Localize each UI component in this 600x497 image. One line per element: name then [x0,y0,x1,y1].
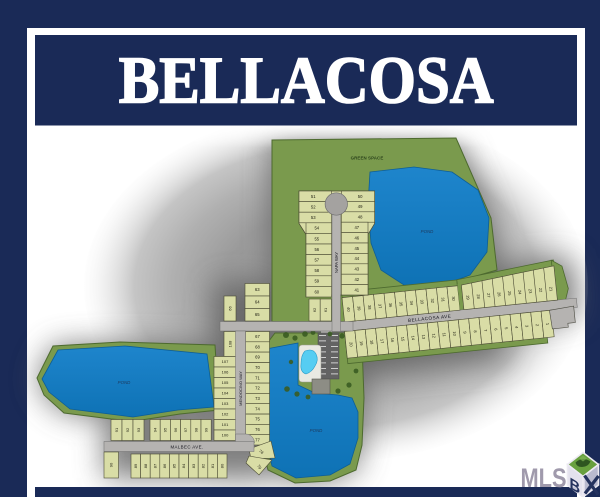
svg-text:POND: POND [118,380,132,385]
svg-text:104: 104 [222,391,229,396]
svg-text:97: 97 [183,427,188,432]
svg-text:106: 106 [222,370,229,375]
svg-text:65: 65 [255,312,260,317]
svg-text:43: 43 [354,267,359,272]
svg-text:82: 82 [200,463,205,468]
svg-text:60: 60 [314,289,319,294]
svg-text:94: 94 [153,427,158,432]
svg-text:49: 49 [358,204,363,209]
svg-text:MALBEC AVE.: MALBEC AVE. [170,444,203,449]
svg-text:86: 86 [162,463,167,468]
svg-text:72: 72 [255,386,260,391]
svg-text:BELLACOSA: BELLACOSA [119,44,494,118]
svg-text:95: 95 [163,427,168,432]
svg-text:POND: POND [421,229,435,234]
svg-text:47: 47 [354,225,359,230]
svg-text:57: 57 [314,258,319,263]
svg-text:81: 81 [210,463,215,468]
svg-text:83: 83 [191,463,196,468]
svg-text:GREEN SPACE: GREEN SPACE [351,156,384,161]
svg-text:68: 68 [255,344,260,349]
svg-text:74: 74 [255,406,260,411]
svg-text:92: 92 [125,427,130,432]
svg-text:44: 44 [354,256,359,261]
svg-text:POND: POND [310,428,324,433]
svg-text:MLS: MLS [521,463,567,493]
svg-text:102: 102 [222,412,229,417]
svg-text:42: 42 [354,277,359,282]
svg-text:69: 69 [255,355,260,360]
svg-text:56: 56 [314,247,319,252]
svg-text:71: 71 [255,375,260,380]
svg-text:85: 85 [172,463,177,468]
svg-text:90: 90 [109,462,114,467]
svg-text:84: 84 [181,463,186,468]
svg-text:45: 45 [354,246,359,251]
svg-text:70: 70 [255,365,260,370]
svg-text:80: 80 [220,463,225,468]
svg-text:98: 98 [193,427,198,432]
svg-text:75: 75 [255,417,260,422]
svg-text:67: 67 [255,334,260,339]
svg-text:88: 88 [143,463,148,468]
svg-text:66: 66 [228,306,233,311]
svg-text:103: 103 [222,401,229,406]
svg-text:76: 76 [255,427,260,432]
svg-text:87: 87 [152,463,157,468]
svg-text:41: 41 [354,287,359,292]
svg-text:62: 62 [312,307,317,312]
svg-text:89: 89 [133,463,138,468]
svg-text:58: 58 [314,268,319,273]
svg-text:51: 51 [311,194,316,199]
svg-text:55: 55 [314,236,319,241]
svg-text:77: 77 [255,437,260,442]
svg-text:50: 50 [358,194,363,199]
svg-text:54: 54 [314,226,319,231]
svg-text:108: 108 [228,340,233,347]
svg-text:101: 101 [222,422,229,427]
svg-text:59: 59 [314,279,319,284]
svg-text:61: 61 [323,307,328,312]
svg-text:93: 93 [136,427,141,432]
svg-text:64: 64 [255,300,260,305]
svg-text:46: 46 [354,235,359,240]
svg-text:99: 99 [204,427,209,432]
svg-text:100: 100 [222,433,229,438]
svg-text:NAPA WAY: NAPA WAY [334,252,339,273]
svg-text:91: 91 [114,427,119,432]
svg-text:96: 96 [173,427,178,432]
svg-text:73: 73 [255,396,260,401]
svg-text:63: 63 [255,287,260,292]
svg-text:107: 107 [222,359,229,364]
svg-text:MENDOCINO WAY: MENDOCINO WAY [238,371,243,406]
svg-text:53: 53 [311,215,316,220]
svg-text:48: 48 [358,215,363,220]
svg-text:105: 105 [222,380,229,385]
svg-text:52: 52 [311,205,316,210]
